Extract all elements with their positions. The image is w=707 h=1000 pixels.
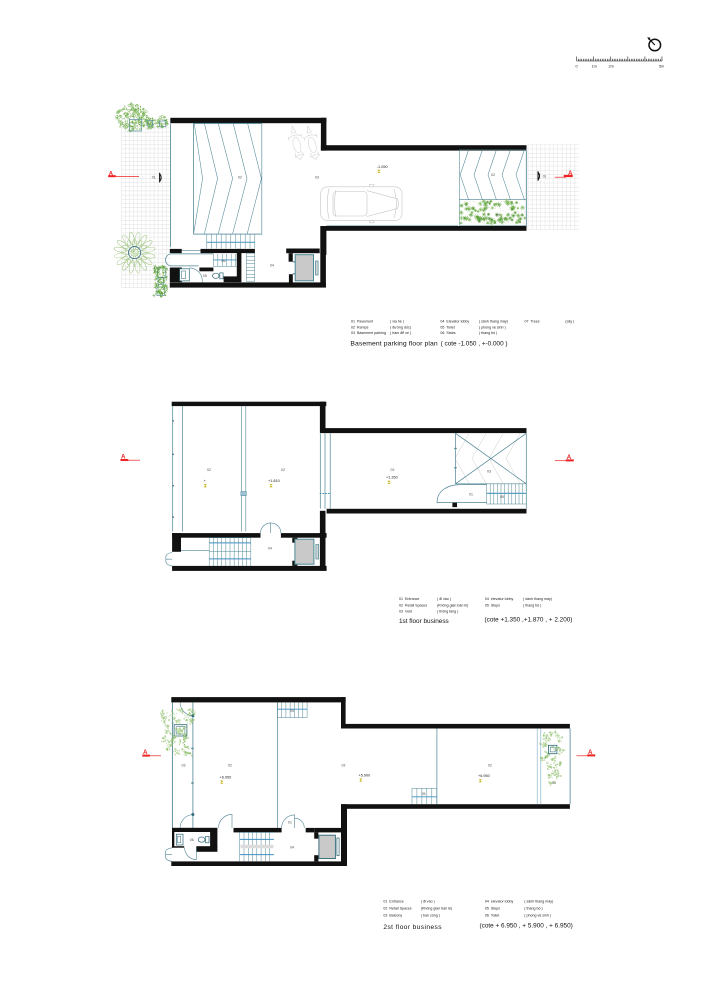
svg-text:04 elevator lobby: 04 elevator lobby — [485, 597, 514, 601]
svg-text:A: A — [588, 749, 593, 756]
svg-text:01: 01 — [469, 493, 473, 497]
svg-text:05: 05 — [290, 709, 294, 713]
svg-text:( cote -1.050 , +-0.000 ): ( cote -1.050 , +-0.000 ) — [441, 340, 508, 347]
svg-text:( ban công ): ( ban công ) — [421, 914, 440, 918]
svg-text:01: 01 — [543, 174, 547, 178]
svg-text:2m: 2m — [609, 65, 614, 69]
svg-text:05: 05 — [203, 274, 207, 278]
svg-text:01: 01 — [152, 175, 156, 179]
svg-text:+1.350: +1.350 — [386, 476, 398, 480]
svg-text:03: 03 — [552, 781, 556, 785]
svg-text:( thang bộ ): ( thang bộ ) — [523, 603, 541, 607]
svg-text:02: 02 — [391, 468, 395, 472]
svg-text:02 Ramps: 02 Ramps — [351, 325, 369, 329]
svg-text:( phòng vệ sinh ): ( phòng vệ sinh ) — [524, 914, 551, 918]
svg-text:01 Entrance: 01 Entrance — [399, 597, 419, 601]
svg-text:04: 04 — [270, 264, 274, 268]
svg-text:( đi vào ): ( đi vào ) — [421, 900, 435, 904]
svg-text:+6.950: +6.950 — [220, 776, 232, 780]
svg-text:5m: 5m — [659, 65, 664, 69]
svg-text:05 Steps: 05 Steps — [485, 907, 500, 911]
svg-text:(cây ): (cây ) — [565, 320, 574, 324]
svg-text:02 Retail Spaces: 02 Retail Spaces — [383, 907, 411, 911]
svg-text:02: 02 — [228, 764, 232, 768]
svg-text:1st floor business: 1st floor business — [399, 618, 449, 625]
svg-text:( đường dốc): ( đường dốc) — [390, 325, 411, 329]
svg-text:A: A — [567, 454, 572, 461]
svg-text:(cote + 6.950 , + 5.900 , + 6.: (cote + 6.950 , + 5.900 , + 6.950) — [480, 923, 573, 930]
svg-text:(Không gian bán lẻ): (Không gian bán lẻ) — [437, 603, 468, 607]
svg-text:+1.810: +1.810 — [268, 479, 280, 483]
svg-text:( thông tầng ): ( thông tầng ) — [437, 610, 458, 614]
svg-text:06: 06 — [190, 838, 194, 842]
svg-text:( sảnh thang máy): ( sảnh thang máy) — [479, 320, 508, 324]
svg-text:02: 02 — [491, 173, 495, 177]
svg-text:1m: 1m — [592, 65, 597, 69]
svg-text:03 Basement parking: 03 Basement parking — [351, 331, 386, 335]
svg-text:01 Pavement: 01 Pavement — [351, 320, 373, 324]
svg-text:02 Retail Spaces: 02 Retail Spaces — [399, 603, 427, 607]
svg-text:(cote +1.350 ,+1.870 , + 2.200: (cote +1.350 ,+1.870 , + 2.200) — [485, 617, 573, 624]
svg-text:03: 03 — [182, 764, 186, 768]
svg-text:( sảnh thang máy): ( sảnh thang máy) — [523, 597, 552, 601]
svg-text:06: 06 — [222, 259, 226, 263]
svg-text:02: 02 — [238, 176, 242, 180]
svg-text:A: A — [568, 170, 573, 177]
svg-text:04 elevator lobby: 04 elevator lobby — [485, 900, 514, 904]
svg-text:02: 02 — [488, 764, 492, 768]
svg-text:(Không gian bán lẻ): (Không gian bán lẻ) — [421, 907, 452, 911]
svg-text:0: 0 — [576, 65, 578, 69]
svg-text:Basement parking floor plan: Basement parking floor plan — [350, 340, 437, 347]
svg-text:04 Elevator lobby: 04 Elevator lobby — [440, 320, 469, 324]
svg-text:-1.050: -1.050 — [377, 165, 388, 169]
svg-text:01 Entrance: 01 Entrance — [383, 900, 403, 904]
svg-text:06 Toilet: 06 Toilet — [485, 914, 499, 918]
svg-text:05: 05 — [500, 495, 504, 499]
svg-text:02: 02 — [281, 468, 285, 472]
svg-text:( đi vào ): ( đi vào ) — [437, 597, 451, 601]
svg-text:02: 02 — [342, 764, 346, 768]
svg-text:( thang bộ ): ( thang bộ ) — [479, 331, 497, 335]
svg-text:+6.950: +6.950 — [478, 774, 490, 778]
svg-text:05 Toilet: 05 Toilet — [440, 325, 454, 329]
svg-text:( hầm để xe ): ( hầm để xe ) — [390, 331, 411, 335]
svg-text:04: 04 — [290, 846, 294, 850]
svg-text:01: 01 — [288, 821, 292, 825]
svg-text:07: 07 — [496, 214, 500, 218]
svg-text:05: 05 — [422, 792, 426, 796]
svg-text:02: 02 — [207, 468, 211, 472]
svg-text:+5.900: +5.900 — [359, 773, 371, 777]
svg-text:04: 04 — [268, 547, 272, 551]
svg-text:05 Steps: 05 Steps — [485, 603, 500, 607]
svg-text:( phòng vệ sinh ): ( phòng vệ sinh ) — [479, 325, 506, 329]
svg-text:( sảnh thang máy): ( sảnh thang máy) — [524, 900, 553, 904]
svg-text:2st floor business: 2st floor business — [383, 924, 442, 931]
svg-text:07 Trees: 07 Trees — [525, 320, 540, 324]
svg-text:06 Stairs: 06 Stairs — [440, 331, 455, 335]
svg-text:( thang bộ ): ( thang bộ ) — [524, 907, 542, 911]
svg-text:03 Void: 03 Void — [399, 610, 412, 614]
svg-text:03 Balcony: 03 Balcony — [383, 914, 402, 918]
svg-text:03: 03 — [487, 470, 491, 474]
svg-text:( via hè ): ( via hè ) — [390, 320, 404, 324]
svg-text:03: 03 — [315, 176, 319, 180]
